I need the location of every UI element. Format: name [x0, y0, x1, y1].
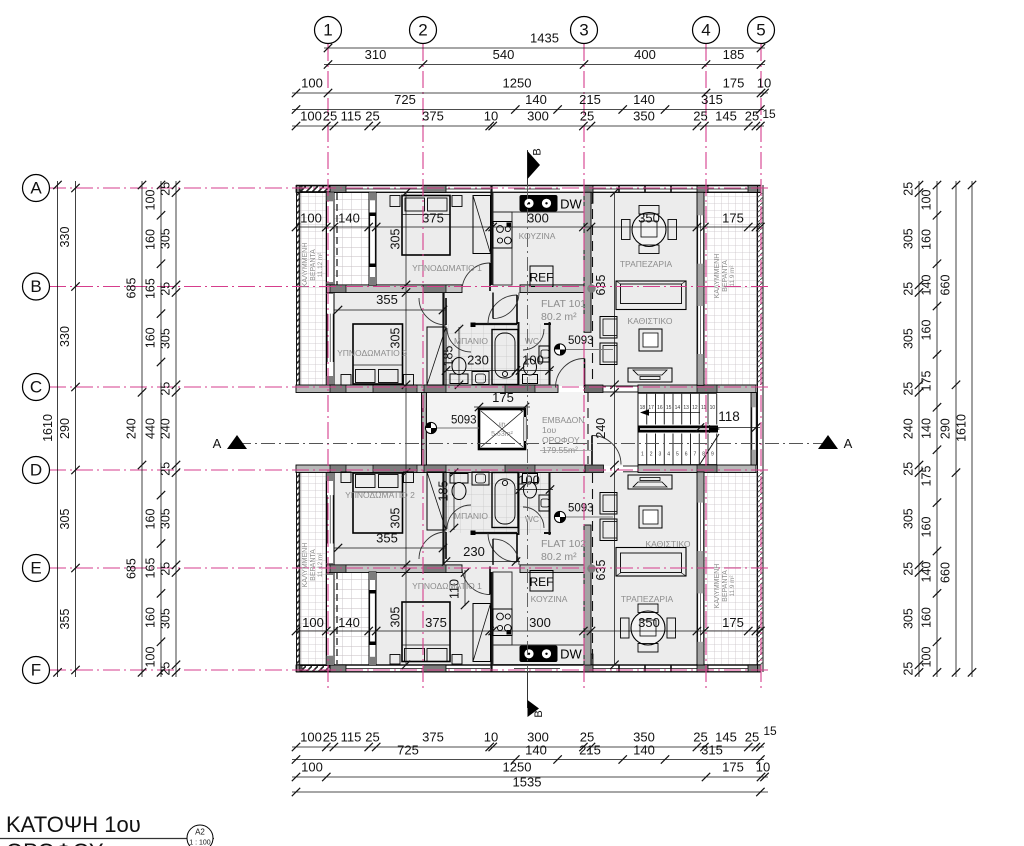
svg-text:ΥΠΝΟΔΩΜΑΤΙΟ 1: ΥΠΝΟΔΩΜΑΤΙΟ 1	[412, 263, 482, 273]
svg-text:305: 305	[58, 509, 72, 530]
svg-text:185: 185	[442, 346, 456, 367]
svg-text:179.55m²: 179.55m²	[542, 445, 578, 455]
svg-text:440: 440	[144, 418, 158, 439]
svg-text:ΤΡΑΠΕΖΑΡΙΑ: ΤΡΑΠΕΖΑΡΙΑ	[621, 594, 674, 604]
svg-text:25: 25	[902, 562, 916, 576]
svg-text:305: 305	[389, 229, 403, 250]
svg-text:100: 100	[522, 353, 544, 368]
svg-text:160: 160	[920, 229, 934, 250]
svg-text:2: 2	[650, 452, 653, 458]
svg-text:305: 305	[159, 508, 173, 529]
svg-text:ΥΠΝΟΔΩΜΑΤΙΟ 2: ΥΠΝΟΔΩΜΑΤΙΟ 2	[345, 490, 415, 500]
svg-text:300: 300	[529, 615, 551, 630]
svg-text:25: 25	[159, 562, 173, 576]
svg-text:ΕΜΒΑΔΟΝ: ΕΜΒΑΔΟΝ	[542, 415, 584, 425]
svg-text:4: 4	[701, 21, 710, 40]
svg-text:118: 118	[718, 409, 740, 424]
svg-text:355: 355	[376, 292, 398, 307]
svg-text:315: 315	[701, 743, 723, 758]
svg-text:11.12 m²: 11.12 m²	[317, 253, 324, 277]
svg-text:ΤΡΑΠΕΖΑΡΙΑ: ΤΡΑΠΕΖΑΡΙΑ	[620, 259, 673, 269]
svg-text:D: D	[30, 461, 42, 480]
svg-text:305: 305	[902, 228, 916, 249]
svg-text:WC: WC	[525, 336, 539, 346]
svg-text:25: 25	[159, 662, 173, 676]
svg-text:7: 7	[694, 452, 697, 458]
svg-text:ΚΑΛΥΜΜΕΝΗ: ΚΑΛΥΜΜΕΝΗ	[714, 564, 721, 609]
svg-text:240: 240	[594, 418, 608, 439]
svg-text:18: 18	[640, 405, 646, 411]
svg-text:725: 725	[397, 743, 419, 758]
svg-text:ΟΡΟΦΟΥ: ΟΡΟΦΟΥ	[542, 435, 580, 445]
svg-text:140: 140	[525, 92, 547, 107]
svg-text:160: 160	[920, 607, 934, 628]
svg-text:175: 175	[492, 390, 514, 405]
svg-text:160: 160	[920, 517, 934, 538]
svg-text:310: 310	[365, 47, 387, 62]
svg-text:100: 100	[301, 760, 323, 775]
svg-text:145: 145	[715, 109, 737, 124]
svg-text:355: 355	[58, 609, 72, 630]
svg-text:725: 725	[394, 92, 416, 107]
svg-text:100: 100	[144, 190, 158, 211]
svg-text:175: 175	[722, 615, 744, 630]
svg-text:A: A	[213, 436, 222, 451]
svg-text:ΚΑΛΥΜΜΕΝΗ: ΚΑΛΥΜΜΕΝΗ	[302, 543, 309, 588]
svg-text:660: 660	[939, 562, 953, 583]
svg-text:240: 240	[159, 418, 173, 439]
svg-text:290: 290	[58, 418, 72, 439]
svg-text:100: 100	[302, 615, 324, 630]
svg-text:350: 350	[633, 109, 655, 124]
svg-text:305: 305	[902, 328, 916, 349]
svg-text:ΒΕΡΑΝΤΑ: ΒΕΡΑΝΤΑ	[722, 260, 729, 292]
svg-text:140: 140	[920, 562, 934, 583]
svg-text:5.63m²: 5.63m²	[491, 431, 513, 438]
svg-text:115: 115	[341, 730, 362, 745]
svg-text:305: 305	[902, 508, 916, 529]
svg-text:230: 230	[467, 353, 489, 368]
svg-text:B: B	[533, 710, 545, 717]
svg-text:215: 215	[579, 743, 601, 758]
svg-text:13: 13	[683, 405, 689, 411]
svg-text:ΜΠΑΝΙΟ: ΜΠΑΝΙΟ	[454, 511, 488, 521]
svg-text:1535: 1535	[513, 775, 542, 790]
svg-text:ΥΠΝΟΔΩΜΑΤΙΟ 1: ΥΠΝΟΔΩΜΑΤΙΟ 1	[412, 581, 482, 591]
svg-text:ΚΑΛΥΜΜΕΝΗ: ΚΑΛΥΜΜΕΝΗ	[714, 254, 721, 299]
svg-text:540: 540	[493, 47, 515, 62]
svg-text:140: 140	[633, 743, 655, 758]
svg-text:25: 25	[365, 730, 379, 745]
svg-text:185: 185	[437, 481, 451, 502]
svg-text:15: 15	[666, 405, 672, 411]
svg-text:175: 175	[723, 76, 745, 91]
svg-text:80.2 m²: 80.2 m²	[541, 311, 577, 323]
svg-text:25: 25	[323, 109, 337, 124]
svg-text:25: 25	[159, 282, 173, 296]
svg-text:ΒΕΡΑΝΤΑ: ΒΕΡΑΝΤΑ	[310, 549, 317, 581]
svg-text:375: 375	[422, 109, 444, 124]
svg-text:100: 100	[518, 473, 540, 488]
svg-text:6: 6	[685, 452, 688, 458]
svg-text:9: 9	[711, 452, 714, 458]
svg-text:ΜΠΑΝΙΟ: ΜΠΑΝΙΟ	[454, 336, 488, 346]
svg-text:185: 185	[723, 47, 745, 62]
svg-text:15: 15	[763, 724, 777, 738]
svg-text:25: 25	[745, 730, 759, 745]
svg-text:2: 2	[418, 21, 427, 40]
svg-text:1435: 1435	[530, 31, 559, 46]
svg-text:100: 100	[300, 211, 322, 226]
svg-text:11.12 m²: 11.12 m²	[317, 553, 324, 577]
svg-text:175: 175	[920, 371, 934, 392]
svg-text:10: 10	[484, 730, 498, 745]
svg-text:FLAT 102: FLAT 102	[541, 538, 586, 550]
svg-text:ΥΠΝΟΔΩΜΑΤΙΟ 2: ΥΠΝΟΔΩΜΑΤΙΟ 2	[337, 348, 407, 358]
svg-text:300: 300	[527, 211, 549, 226]
svg-text:100: 100	[920, 190, 934, 211]
svg-text:635: 635	[594, 275, 608, 296]
svg-text:14: 14	[675, 405, 681, 411]
svg-text:1 : 100: 1 : 100	[189, 840, 211, 846]
svg-text:10: 10	[757, 76, 771, 91]
svg-text:375: 375	[422, 211, 444, 226]
svg-text:1610: 1610	[955, 414, 969, 442]
svg-text:80.2 m²: 80.2 m²	[541, 551, 577, 563]
svg-text:A2: A2	[195, 828, 205, 837]
svg-text:350: 350	[638, 211, 660, 226]
svg-text:175: 175	[722, 211, 744, 226]
svg-text:DW: DW	[560, 647, 582, 662]
svg-text:25: 25	[902, 282, 916, 296]
svg-text:1250: 1250	[503, 760, 532, 775]
svg-text:305: 305	[902, 608, 916, 629]
svg-text:165: 165	[144, 558, 158, 579]
svg-text:305: 305	[389, 508, 403, 529]
svg-text:A: A	[30, 179, 42, 198]
svg-text:11.9 m²: 11.9 m²	[729, 576, 736, 597]
svg-text:305: 305	[389, 607, 403, 628]
svg-text:660: 660	[939, 275, 953, 296]
svg-text:1ου: 1ου	[542, 425, 556, 435]
svg-text:25: 25	[159, 382, 173, 396]
svg-text:685: 685	[125, 278, 139, 299]
svg-text:4: 4	[667, 452, 670, 458]
svg-text:160: 160	[920, 320, 934, 341]
svg-text:1: 1	[641, 452, 644, 458]
svg-text:160: 160	[144, 229, 158, 250]
svg-text:305: 305	[159, 328, 173, 349]
svg-text:12: 12	[692, 405, 698, 411]
svg-text:140: 140	[633, 92, 655, 107]
svg-text:C: C	[30, 378, 42, 397]
svg-text:FLAT 101: FLAT 101	[541, 298, 586, 310]
svg-text:305: 305	[159, 228, 173, 249]
svg-text:140: 140	[338, 211, 360, 226]
svg-text:10: 10	[484, 109, 498, 124]
svg-text:230: 230	[463, 544, 485, 559]
svg-text:F: F	[31, 661, 41, 680]
svg-text:400: 400	[634, 47, 656, 62]
svg-text:ΟΡΟΦΟΥ: ΟΡΟΦΟΥ	[6, 839, 104, 846]
svg-text:ΚΟΥΖΙΝΑ: ΚΟΥΖΙΝΑ	[531, 594, 568, 604]
svg-text:140: 140	[338, 615, 360, 630]
svg-text:240: 240	[125, 418, 139, 439]
svg-text:375: 375	[425, 615, 447, 630]
svg-text:100: 100	[144, 647, 158, 668]
svg-text:175: 175	[722, 760, 744, 775]
svg-text:ΚΑΛΥΜΜΕΝΗ: ΚΑΛΥΜΜΕΝΗ	[302, 243, 309, 288]
svg-text:140: 140	[920, 418, 934, 439]
svg-text:290: 290	[939, 418, 953, 439]
svg-text:5: 5	[756, 21, 765, 40]
svg-text:3: 3	[659, 452, 662, 458]
svg-text:A: A	[844, 436, 853, 451]
svg-text:25: 25	[159, 182, 173, 196]
svg-text:E: E	[30, 559, 41, 578]
svg-text:140: 140	[920, 275, 934, 296]
svg-text:115: 115	[341, 109, 362, 124]
svg-text:B: B	[30, 277, 41, 296]
svg-text:15: 15	[762, 107, 776, 121]
svg-text:175: 175	[920, 466, 934, 487]
svg-text:11.9 m²: 11.9 m²	[729, 266, 736, 287]
svg-text:REF: REF	[530, 271, 554, 285]
svg-text:330: 330	[58, 326, 72, 347]
svg-text:1: 1	[323, 21, 332, 40]
svg-text:330: 330	[58, 227, 72, 248]
svg-text:5: 5	[676, 452, 679, 458]
svg-text:ΒΕΡΑΝΤΑ: ΒΕΡΑΝΤΑ	[722, 570, 729, 602]
svg-text:DW: DW	[560, 197, 582, 212]
svg-text:25: 25	[902, 382, 916, 396]
svg-text:17: 17	[648, 405, 654, 411]
svg-text:25: 25	[693, 109, 707, 124]
svg-text:635: 635	[594, 560, 608, 581]
svg-text:300: 300	[527, 109, 549, 124]
svg-text:160: 160	[144, 509, 158, 530]
svg-text:25: 25	[159, 462, 173, 476]
svg-text:25: 25	[902, 462, 916, 476]
svg-text:100: 100	[300, 730, 322, 745]
svg-text:ΚΑΘΙΣΤΙΚΟ: ΚΑΘΙΣΤΙΚΟ	[628, 316, 673, 326]
svg-text:375: 375	[422, 730, 444, 745]
svg-text:240: 240	[902, 418, 916, 439]
svg-text:B: B	[532, 148, 544, 155]
svg-text:305: 305	[159, 608, 173, 629]
svg-text:685: 685	[125, 558, 139, 579]
svg-text:1610: 1610	[41, 414, 55, 442]
svg-text:10: 10	[710, 405, 716, 411]
svg-text:25: 25	[902, 662, 916, 676]
svg-text:WC: WC	[525, 514, 539, 524]
svg-text:5093: 5093	[568, 335, 594, 347]
svg-text:5093: 5093	[568, 503, 594, 515]
svg-text:305: 305	[389, 328, 403, 349]
svg-text:REF: REF	[530, 575, 554, 589]
svg-text:10: 10	[756, 760, 770, 775]
svg-text:215: 215	[579, 92, 601, 107]
svg-text:25: 25	[745, 109, 759, 124]
svg-text:355: 355	[376, 531, 398, 546]
svg-text:350: 350	[638, 615, 660, 630]
svg-text:ΚΑΤΟΨΗ 1ου: ΚΑΤΟΨΗ 1ου	[6, 812, 141, 837]
svg-text:25: 25	[580, 109, 594, 124]
svg-text:ΒΕΡΑΝΤΑ: ΒΕΡΑΝΤΑ	[310, 249, 317, 281]
svg-text:ΚΑΘΙΣΤΙΚΟ: ΚΑΘΙΣΤΙΚΟ	[646, 539, 691, 549]
svg-text:160: 160	[144, 607, 158, 628]
svg-text:100: 100	[301, 76, 323, 91]
svg-text:100: 100	[300, 109, 322, 124]
svg-text:100: 100	[920, 647, 934, 668]
svg-text:25: 25	[323, 730, 337, 745]
svg-text:140: 140	[525, 743, 547, 758]
svg-text:5093: 5093	[451, 415, 477, 427]
svg-text:25: 25	[902, 182, 916, 196]
svg-text:160: 160	[144, 327, 158, 348]
svg-text:16: 16	[657, 405, 663, 411]
svg-text:ΚΟΥΖΙΝΑ: ΚΟΥΖΙΝΑ	[519, 231, 556, 241]
svg-text:25: 25	[365, 109, 379, 124]
svg-text:lift: lift	[499, 422, 506, 429]
svg-text:1250: 1250	[503, 76, 532, 91]
svg-text:3: 3	[579, 21, 588, 40]
svg-text:165: 165	[144, 278, 158, 299]
svg-text:315: 315	[701, 92, 723, 107]
